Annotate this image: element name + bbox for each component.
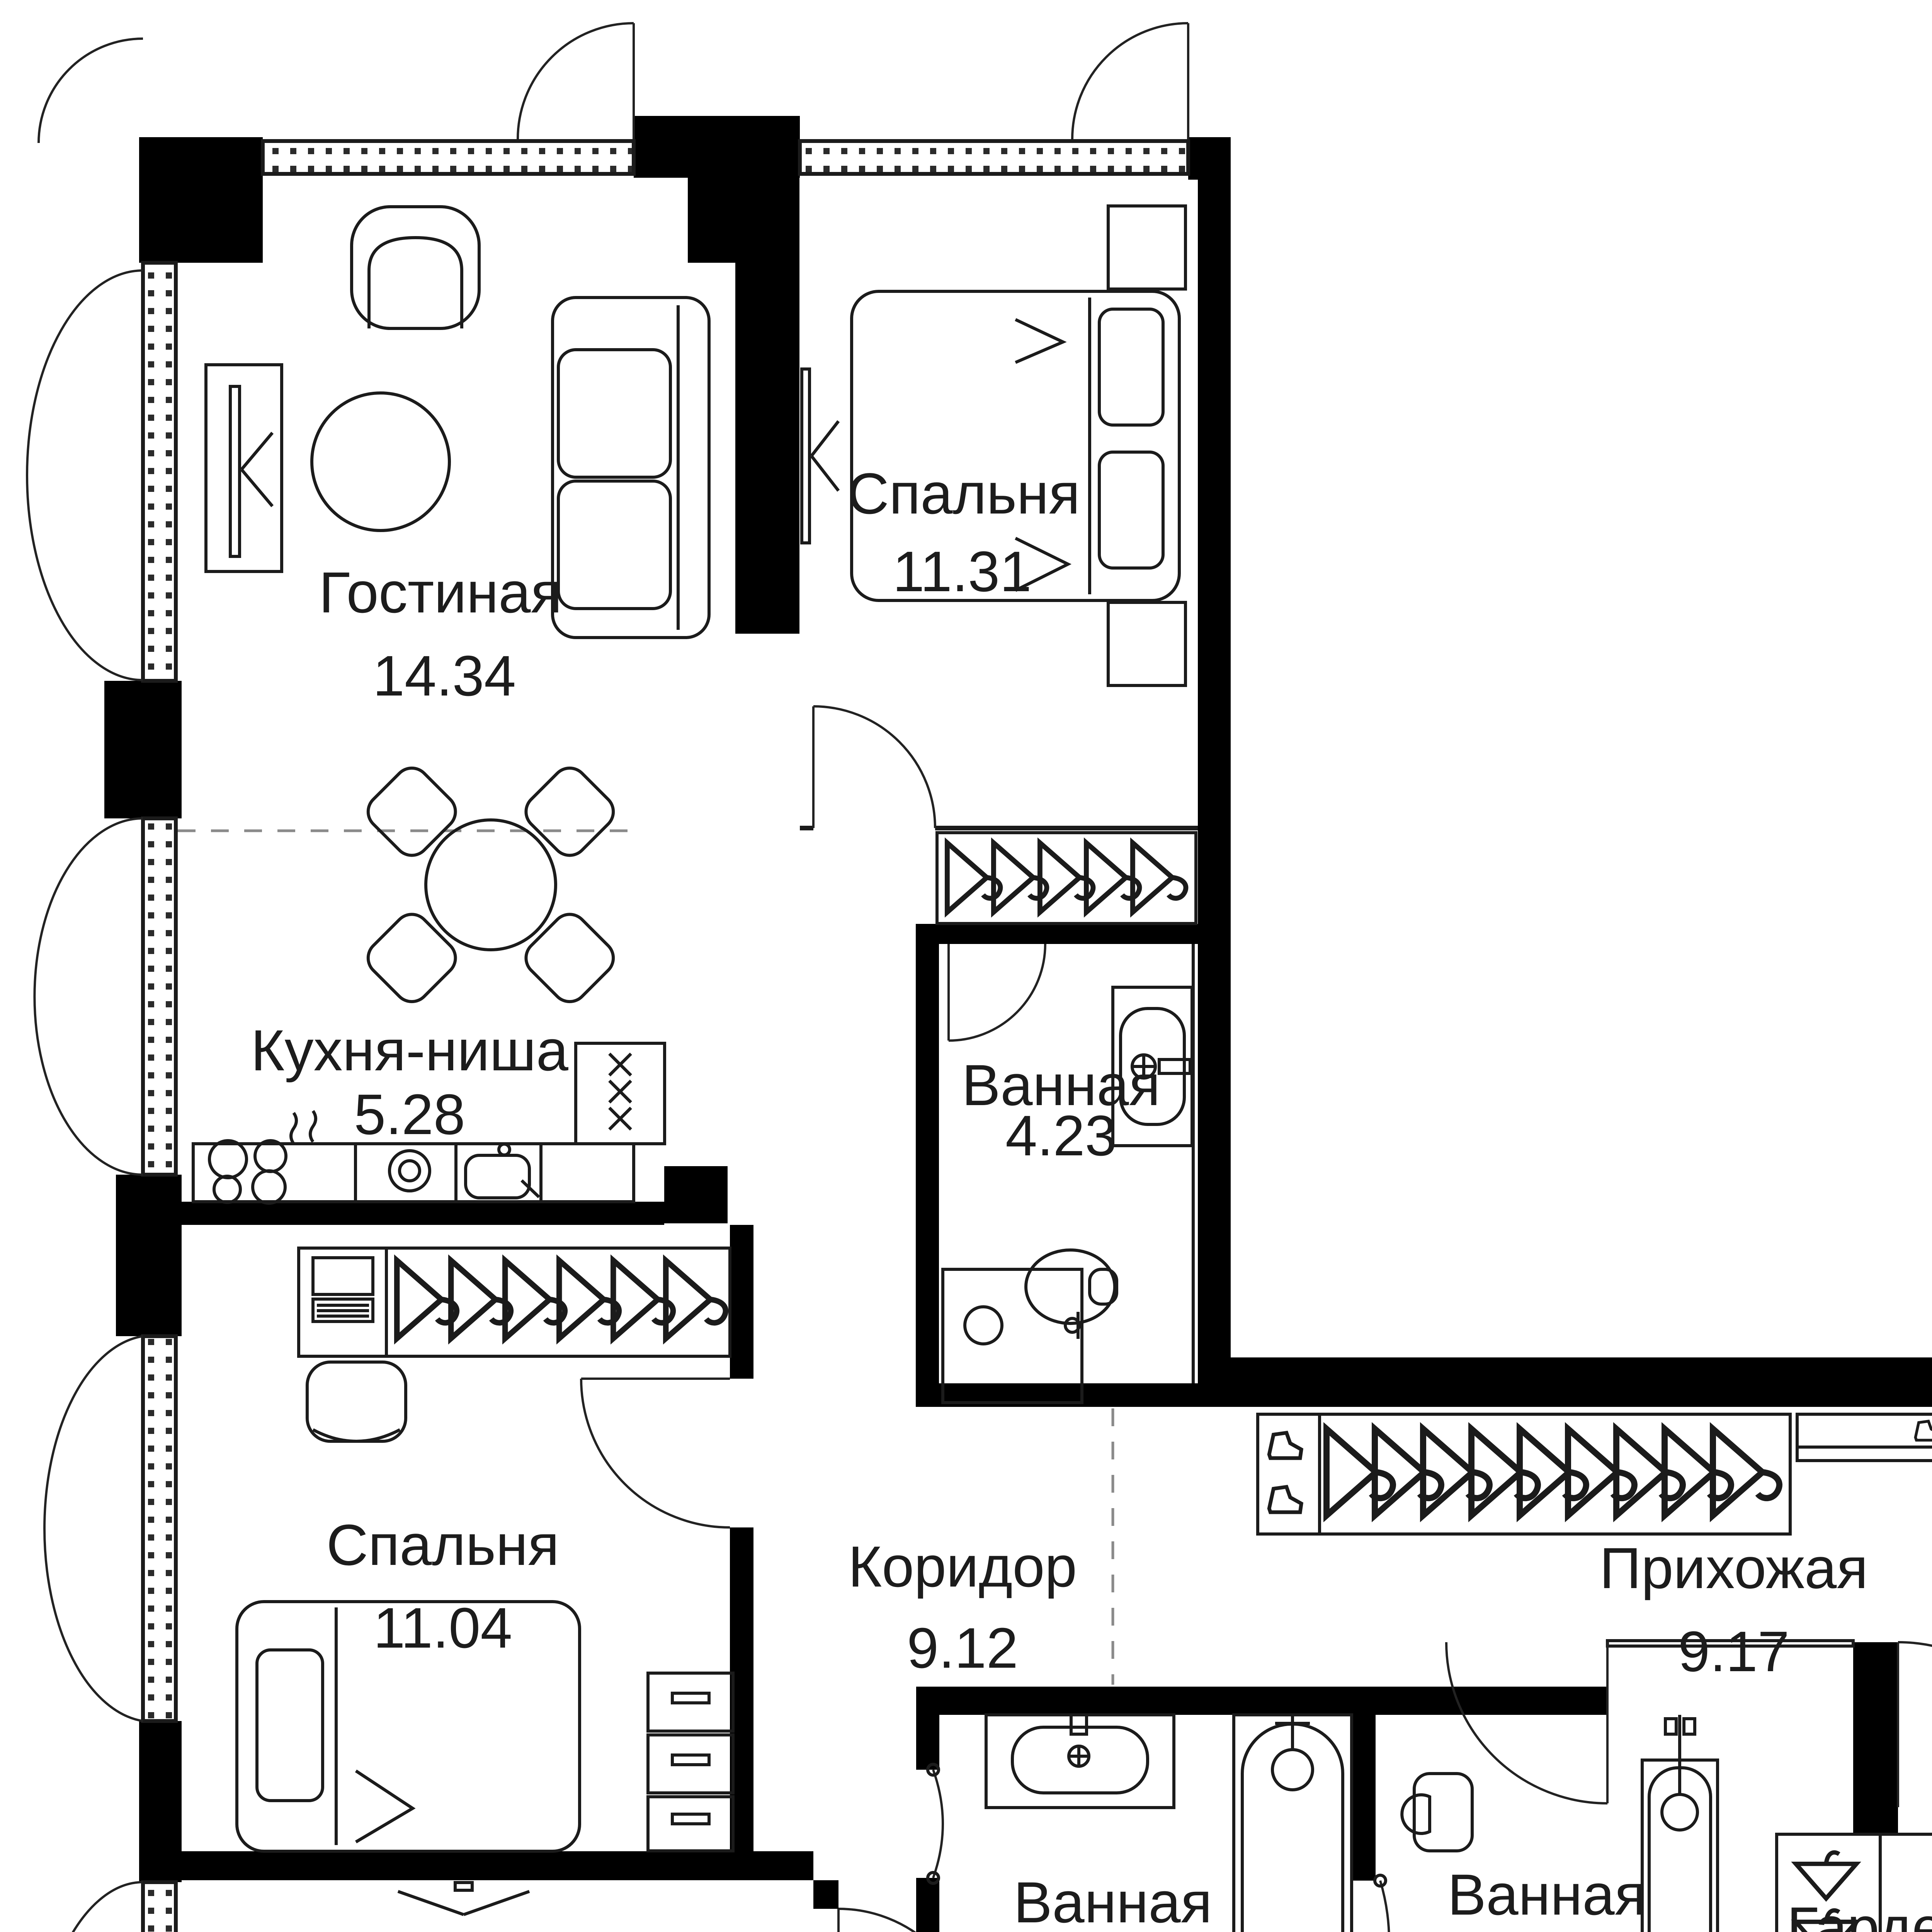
dresser-icon bbox=[648, 1673, 733, 1851]
stove-icon bbox=[209, 1111, 316, 1203]
toilet-icon bbox=[1402, 1774, 1472, 1851]
desk-icon bbox=[299, 1248, 386, 1356]
room-area: 11.31 bbox=[893, 540, 1031, 604]
wall bbox=[1231, 1357, 1932, 1407]
facade-arc bbox=[34, 1882, 143, 1932]
wardrobe-row bbox=[386, 1248, 730, 1356]
tv-console-icon bbox=[206, 365, 282, 571]
balcony-door-arc-icon bbox=[518, 23, 634, 139]
toilet-icon bbox=[1026, 1250, 1117, 1323]
room-area: 4.23 bbox=[1005, 1104, 1117, 1168]
wall bbox=[813, 1880, 838, 1909]
nightstand-icon bbox=[1108, 602, 1185, 685]
room-label-living: Гостиная 14.34 bbox=[319, 560, 562, 708]
room-name: Коридор bbox=[848, 1534, 1077, 1599]
room-label-corridor: Коридор 9.12 bbox=[848, 1534, 1077, 1680]
plate-icon bbox=[389, 1151, 430, 1191]
wall bbox=[664, 1166, 728, 1223]
door-bath-4-23 bbox=[949, 944, 1045, 1041]
wall bbox=[1853, 1642, 1898, 1834]
sink-icon bbox=[466, 1144, 539, 1198]
room-bath-3: Ванная 4.55 bbox=[1402, 1715, 1718, 1932]
laptop-icon bbox=[313, 1258, 373, 1294]
room-label-kitchen: Кухня-ниша 5.28 bbox=[251, 1018, 568, 1146]
room-label-bath-1: Ванная 4.23 bbox=[962, 1053, 1160, 1168]
wall bbox=[1198, 178, 1231, 1407]
balcony-door-arc-icon bbox=[1072, 23, 1188, 139]
room-label-wardrobe-1: Гардеробная 4.00 bbox=[1787, 1895, 1932, 1932]
room-area: 5.28 bbox=[354, 1083, 465, 1146]
room-name: Кухня-ниша bbox=[251, 1018, 568, 1083]
room-bedroom-2: Спальня 11.04 bbox=[237, 1248, 733, 1851]
coffee-table-icon bbox=[312, 393, 449, 531]
door-bath-4-85 bbox=[928, 1764, 943, 1883]
wall bbox=[916, 1687, 1607, 1715]
doors bbox=[581, 706, 1932, 1932]
wall bbox=[634, 116, 800, 178]
room-area: 9.12 bbox=[907, 1616, 1018, 1680]
room-area: 4.85 bbox=[1057, 1930, 1168, 1932]
facade-arc bbox=[44, 1336, 143, 1721]
room-name: Спальня bbox=[327, 1512, 560, 1577]
wall bbox=[1188, 137, 1231, 180]
wall bbox=[916, 1878, 939, 1932]
room-corridor: Коридор 9.12 bbox=[848, 1534, 1077, 1680]
bathtub-icon bbox=[1234, 1715, 1352, 1932]
room-area: 9.17 bbox=[1678, 1620, 1789, 1684]
bathtub-icon bbox=[1642, 1715, 1718, 1932]
door-bedroom-11-81 bbox=[838, 1909, 974, 1932]
dining-table-icon bbox=[361, 761, 621, 1009]
door-wardrobe-4-00 bbox=[1898, 1642, 1932, 1807]
wall bbox=[178, 1202, 664, 1225]
room-bath-2: Ванная 4.85 bbox=[986, 1715, 1352, 1932]
room-name: Гардеробная bbox=[1787, 1895, 1932, 1932]
room-name: Прихожая bbox=[1599, 1536, 1868, 1600]
room-name: Ванная bbox=[1447, 1862, 1646, 1927]
room-name: Ванная bbox=[1014, 1870, 1212, 1932]
wall-pillar bbox=[139, 1721, 182, 1882]
room-bedroom-3: Спальня 11.81 bbox=[254, 1883, 730, 1932]
wall bbox=[139, 137, 263, 263]
desk-chair-icon bbox=[307, 1362, 406, 1441]
room-area: 14.34 bbox=[373, 644, 516, 708]
facade-arc bbox=[34, 818, 143, 1175]
door-bedroom-11-04 bbox=[581, 1379, 730, 1527]
facade-arc bbox=[39, 39, 143, 143]
room-area: 11.04 bbox=[373, 1596, 512, 1660]
room-wardrobe-1: Гардеробная 4.00 bbox=[1777, 1834, 1932, 1932]
shoe-cabinet-icon bbox=[1258, 1414, 1320, 1534]
door-bath-divider bbox=[1375, 1875, 1389, 1932]
room-label-bedroom-2: Спальня 11.04 bbox=[327, 1512, 560, 1660]
wall bbox=[1352, 1715, 1376, 1881]
wall bbox=[730, 1225, 753, 1379]
fridge-icon bbox=[576, 1043, 665, 1144]
window-band-icon bbox=[143, 263, 176, 681]
room-label-hallway: Прихожая 9.17 bbox=[1599, 1536, 1868, 1684]
room-bath-1: Ванная 4.23 bbox=[943, 987, 1192, 1403]
door-bedroom-11-31 bbox=[813, 706, 935, 828]
sink-icon bbox=[986, 1715, 1174, 1808]
hall-closet bbox=[947, 843, 1186, 912]
wall bbox=[735, 176, 799, 634]
hall-wardrobe-row bbox=[1320, 1414, 1790, 1534]
nightstand-icon bbox=[1108, 206, 1185, 289]
wall-pillar bbox=[104, 681, 182, 818]
wall-pillar bbox=[116, 1175, 182, 1336]
window-band-icon bbox=[143, 1882, 176, 1932]
tv-icon bbox=[802, 369, 838, 543]
shower-icon bbox=[943, 1269, 1082, 1403]
room-kitchen: Кухня-ниша 5.28 bbox=[193, 1018, 665, 1203]
room-label-bedroom-1: Спальня 11.31 bbox=[847, 461, 1080, 604]
window-band-icon bbox=[143, 1336, 176, 1721]
floor-plan: Гостиная 14.34 Спальня 11.31 bbox=[0, 0, 1932, 1932]
wall bbox=[178, 1851, 813, 1880]
closet-outline bbox=[937, 833, 1196, 923]
window-band-icon bbox=[800, 141, 1188, 174]
wall bbox=[916, 924, 1198, 944]
window-band-icon bbox=[263, 141, 634, 174]
window-band-icon bbox=[143, 818, 176, 1175]
tv-icon bbox=[398, 1883, 529, 1915]
facade-arc bbox=[27, 270, 143, 680]
room-bedroom-1: Спальня 11.31 bbox=[847, 206, 1185, 685]
shoe-bench-icon bbox=[1797, 1414, 1932, 1461]
armchair-icon bbox=[352, 207, 479, 328]
room-name: Спальня bbox=[847, 461, 1080, 526]
sofa-icon bbox=[553, 298, 709, 638]
room-label-bath-3: Ванная 4.55 bbox=[1447, 1862, 1646, 1932]
wall bbox=[916, 944, 939, 1406]
room-name: Гостиная bbox=[319, 560, 562, 625]
room-label-bath-2: Ванная 4.85 bbox=[1014, 1870, 1212, 1932]
